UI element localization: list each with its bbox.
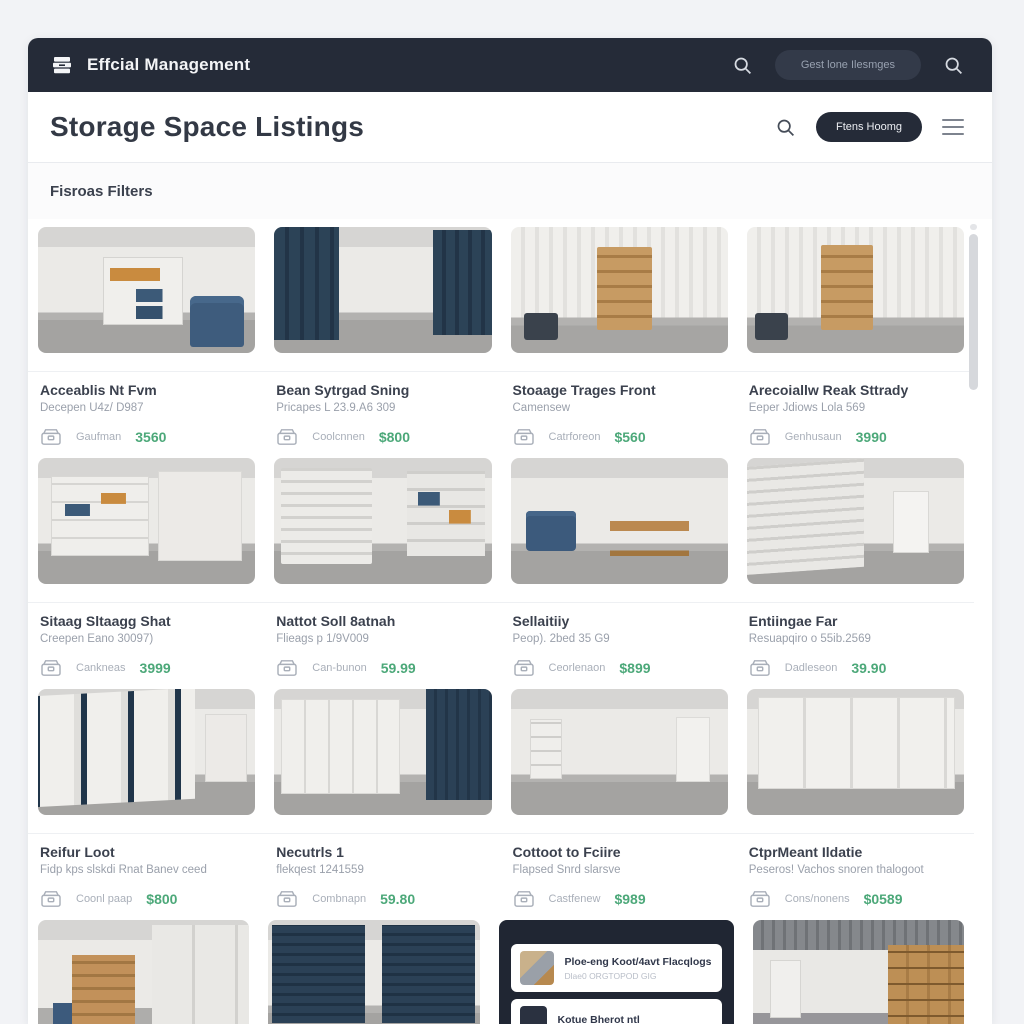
search-icon [943, 55, 964, 76]
listing-subtitle: Creepen Eano 30097) [40, 633, 255, 646]
listing-price: 3990 [856, 429, 887, 445]
notification-title: Kotue Bherot ntl [558, 1014, 640, 1024]
listing-photo[interactable] [747, 227, 964, 353]
listing-title: CtprMeant Ildatie [749, 844, 964, 860]
filters-bar: Fisroas Filters [28, 163, 992, 219]
listing-photo[interactable] [274, 227, 491, 353]
notification-thumbnail [520, 1006, 547, 1024]
top-navbar: Effcial Management Gest lone Ilesmges [28, 38, 992, 92]
listing-card[interactable]: Nattot Soll 8atnah Flieags p 1/9V009 Can… [274, 613, 491, 677]
listing-title: Nattot Soll 8atnah [276, 613, 491, 629]
nav-search-button[interactable] [726, 49, 759, 82]
search-icon [732, 55, 753, 76]
listing-price: 39.90 [851, 660, 886, 676]
listing-title: Cottoot to Fciire [513, 844, 728, 860]
listing-price: $800 [379, 429, 410, 445]
header-search-button[interactable] [769, 111, 802, 144]
listing-price: $899 [619, 660, 650, 676]
archive-stack-logo-icon [50, 53, 74, 77]
storage-box-icon [513, 659, 535, 677]
listing-subtitle: Peseros! Vachos snoren thalogoot [749, 864, 964, 877]
listing-card[interactable]: Reifur Loot Fidp kps slskdi Rnat Banev c… [38, 844, 255, 908]
listing-vendor: Gaufman [76, 431, 121, 443]
vertical-scrollbar[interactable] [969, 234, 978, 390]
notification-thumbnail [520, 951, 554, 985]
listing-vendor: Coolcnnen [312, 431, 365, 443]
listing-price: 59.80 [380, 891, 415, 907]
storage-box-icon [40, 659, 62, 677]
listing-title: Stoaage Trages Front [513, 382, 728, 398]
listing-photo[interactable] [268, 920, 479, 1024]
listing-vendor: Dadleseon [785, 662, 838, 674]
listing-vendor: Castfenew [549, 893, 601, 905]
listing-title: Reifur Loot [40, 844, 255, 860]
listing-title: Arecoiallw Reak Sttrady [749, 382, 964, 398]
listing-card[interactable]: Arecoiallw Reak Sttrady Eeper Jdiows Lol… [747, 382, 964, 446]
notification-panel: Ploe-eng Koot/4avt Flacqlogs Dlae0 ORGTO… [499, 920, 734, 1024]
storage-box-icon [40, 428, 62, 446]
listing-subtitle: Fidp kps slskdi Rnat Banev ceed [40, 864, 255, 877]
storage-box-icon [513, 890, 535, 908]
listing-photo[interactable] [38, 689, 255, 815]
storage-box-icon [749, 890, 771, 908]
notification-subtitle: Dlae0 ORGTOPOD GIG [565, 971, 712, 981]
listing-card[interactable]: Cottoot to Fciire Flapsed Snrd slarsve C… [511, 844, 728, 908]
listing-photo[interactable] [274, 689, 491, 815]
listing-photo[interactable] [511, 227, 728, 353]
row-separator [28, 602, 974, 603]
nav-pill-button[interactable]: Gest lone Ilesmges [775, 50, 921, 80]
listing-subtitle: Peop). 2bed 35 G9 [513, 633, 728, 646]
listing-vendor: Cons/nonens [785, 893, 850, 905]
listing-card[interactable]: Necutrls 1 flekqest 1241559 Combnapn 59.… [274, 844, 491, 908]
listing-subtitle: Flieags p 1/9V009 [276, 633, 491, 646]
listing-title: Bean Sytrgad Sning [276, 382, 491, 398]
row-separator [28, 833, 974, 834]
hamburger-icon [942, 119, 964, 135]
listing-price: 59.99 [381, 660, 416, 676]
page-header: Storage Space Listings Ftens Hoomg [28, 92, 992, 163]
storage-box-icon [276, 890, 298, 908]
listing-card[interactable]: Stoaage Trages Front Camensew Catrforeon… [511, 382, 728, 446]
listing-card[interactable]: Sellaitiiy Peop). 2bed 35 G9 Ceorlenaon … [511, 613, 728, 677]
listing-photo[interactable] [511, 458, 728, 584]
listing-subtitle: Resuapqiro o 55ib.2569 [749, 633, 964, 646]
listing-subtitle: Pricapes L 23.9.A6 309 [276, 402, 491, 415]
listing-vendor: Catrforeon [549, 431, 601, 443]
listing-title: Acceablis Nt Fvm [40, 382, 255, 398]
listing-photo[interactable] [274, 458, 491, 584]
menu-button[interactable] [936, 113, 970, 141]
nav-search-button-2[interactable] [937, 49, 970, 82]
storage-box-icon [749, 428, 771, 446]
listing-vendor: Can-bunon [312, 662, 366, 674]
listing-subtitle: Camensew [513, 402, 728, 415]
storage-box-icon [749, 659, 771, 677]
listing-vendor: Combnapn [312, 893, 366, 905]
listing-subtitle: Eeper Jdiows Lola 569 [749, 402, 964, 415]
listing-title: Sellaitiiy [513, 613, 728, 629]
storage-box-icon [276, 428, 298, 446]
listing-photo[interactable] [747, 458, 964, 584]
listing-photo[interactable] [511, 689, 728, 815]
storage-box-icon [513, 428, 535, 446]
listing-subtitle: flekqest 1241559 [276, 864, 491, 877]
listing-price: 3560 [135, 429, 166, 445]
listing-price: $800 [146, 891, 177, 907]
listing-price: $0589 [864, 891, 903, 907]
listing-subtitle: Flapsed Snrd slarsve [513, 864, 728, 877]
listing-vendor: Ceorlenaon [549, 662, 606, 674]
listing-card[interactable]: Bean Sytrgad Sning Pricapes L 23.9.A6 30… [274, 382, 491, 446]
listing-title: Entiingae Far [749, 613, 964, 629]
listing-vendor: Coonl paap [76, 893, 132, 905]
listing-price: 3999 [140, 660, 171, 676]
page-title: Storage Space Listings [50, 111, 364, 143]
listing-photo[interactable] [38, 458, 255, 584]
storage-box-icon [276, 659, 298, 677]
listings-grid: Acceablis Nt Fvm Decepen U4z/ D987 Gaufm… [28, 219, 992, 1024]
listing-card[interactable]: Sitaag Sltaagg Shat Creepen Eano 30097) … [38, 613, 255, 677]
listing-vendor: Cankneas [76, 662, 126, 674]
listing-photo[interactable] [38, 920, 249, 1024]
search-icon [775, 117, 796, 138]
listing-subtitle: Decepen U4z/ D987 [40, 402, 255, 415]
notification-title: Ploe-eng Koot/4avt Flacqlogs [565, 956, 712, 968]
listing-card[interactable]: CtprMeant Ildatie Peseros! Vachos snoren… [747, 844, 964, 908]
listing-title: Necutrls 1 [276, 844, 491, 860]
row-separator [28, 371, 974, 372]
storage-box-icon [40, 890, 62, 908]
listing-photo[interactable] [38, 227, 255, 353]
listing-card[interactable]: Entiingae Far Resuapqiro o 55ib.2569 Dad… [747, 613, 964, 677]
listing-photo[interactable] [753, 920, 964, 1024]
listing-card[interactable]: Acceablis Nt Fvm Decepen U4z/ D987 Gaufm… [38, 382, 255, 446]
notification-item[interactable]: Ploe-eng Koot/4avt Flacqlogs Dlae0 ORGTO… [511, 944, 722, 992]
listing-price: $560 [614, 429, 645, 445]
brand-name: Effcial Management [87, 55, 250, 75]
notification-item[interactable]: Kotue Bherot ntl [511, 999, 722, 1024]
app-window: Effcial Management Gest lone Ilesmges St… [28, 38, 992, 1024]
listing-title: Sitaag Sltaagg Shat [40, 613, 255, 629]
listing-price: $989 [614, 891, 645, 907]
filters-label: Fisroas Filters [50, 183, 153, 200]
listing-vendor: Genhusaun [785, 431, 842, 443]
listing-photo[interactable] [747, 689, 964, 815]
header-filter-button[interactable]: Ftens Hoomg [816, 112, 922, 142]
